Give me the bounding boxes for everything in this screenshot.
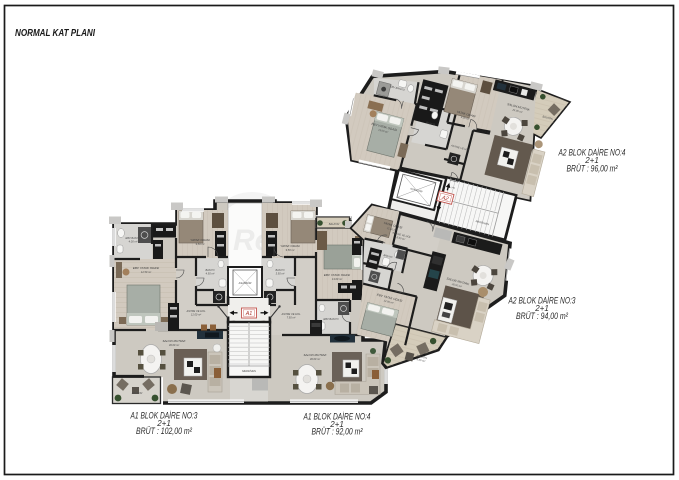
svg-text:NORMAL KAT PLANI: NORMAL KAT PLANI xyxy=(15,27,96,39)
svg-text:BRÜT : 94,00 m²: BRÜT : 94,00 m² xyxy=(516,311,569,321)
svg-text:3.50 m²: 3.50 m² xyxy=(276,272,285,276)
svg-text:MERDİVEN: MERDİVEN xyxy=(242,369,256,373)
svg-text:BANYO: BANYO xyxy=(205,268,214,272)
svg-text:YATAK ODASI: YATAK ODASI xyxy=(280,244,300,248)
svg-text:SALON MUTFAK: SALON MUTFAK xyxy=(303,353,327,357)
svg-text:12.00 m²: 12.00 m² xyxy=(191,313,201,317)
svg-text:7.50 m²: 7.50 m² xyxy=(287,316,296,320)
svg-text:EBV YATAK ODASI: EBV YATAK ODASI xyxy=(133,266,159,270)
svg-text:EBV YATAK ODASI: EBV YATAK ODASI xyxy=(324,273,350,277)
svg-text:9.50 m²: 9.50 m² xyxy=(196,242,205,246)
svg-text:4.50 m²: 4.50 m² xyxy=(206,272,215,276)
svg-text:BRÜT : 96,00 m²: BRÜT : 96,00 m² xyxy=(567,164,619,174)
svg-text:12.50 m²: 12.50 m² xyxy=(141,270,151,274)
svg-text:30.00 m²: 30.00 m² xyxy=(310,357,320,361)
svg-text:13.00 m²: 13.00 m² xyxy=(332,277,342,281)
svg-text:BANYO: BANYO xyxy=(275,268,284,272)
svg-text:BRÜT : 102,00 m²: BRÜT : 102,00 m² xyxy=(136,426,193,436)
svg-text:SALON MUTFAK: SALON MUTFAK xyxy=(162,339,186,343)
svg-text:ANTRE VE HOL: ANTRE VE HOL xyxy=(185,309,206,313)
svg-text:A1: A1 xyxy=(245,311,253,317)
svg-text:YATAK ODASI: YATAK ODASI xyxy=(190,238,210,242)
svg-text:9.50 m²: 9.50 m² xyxy=(286,248,295,252)
svg-text:BALKON: BALKON xyxy=(329,222,340,226)
svg-text:ANTRE VE HOL: ANTRE VE HOL xyxy=(280,312,301,316)
svg-text:BRÜT : 92,00 m²: BRÜT : 92,00 m² xyxy=(312,427,364,437)
svg-text:ASANSÖR: ASANSÖR xyxy=(238,281,252,285)
svg-text:30.00 m²: 30.00 m² xyxy=(169,343,179,347)
svg-text:4.00 m²: 4.00 m² xyxy=(129,240,138,244)
svg-text:EBV BANYO: EBV BANYO xyxy=(126,236,141,240)
svg-text:EBV BANYO: EBV BANYO xyxy=(324,317,339,321)
svg-text:BALKON: BALKON xyxy=(132,391,143,395)
